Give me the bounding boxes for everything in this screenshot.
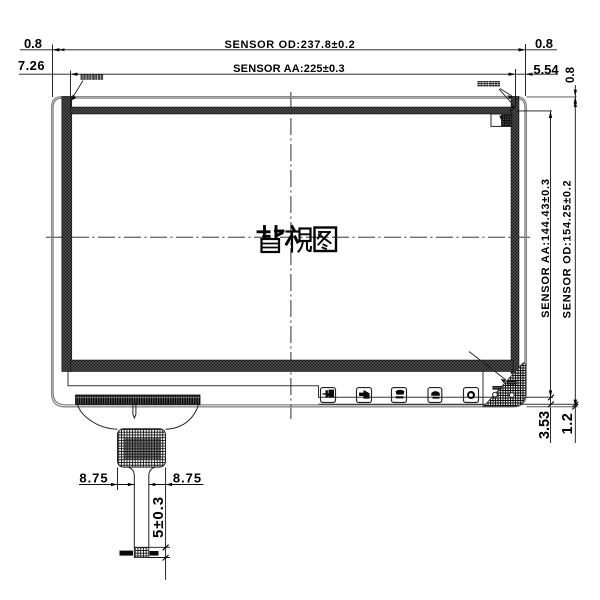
svg-text:1.2: 1.2 bbox=[560, 413, 576, 435]
svg-text:SENSOR AA:225±0.3: SENSOR AA:225±0.3 bbox=[233, 63, 345, 75]
svg-text:3.53: 3.53 bbox=[537, 411, 553, 439]
svg-text:7.26: 7.26 bbox=[18, 58, 45, 73]
svg-text:SENSOR OD:154.25±0.2: SENSOR OD:154.25±0.2 bbox=[562, 180, 574, 319]
svg-text:0.8: 0.8 bbox=[535, 36, 553, 51]
svg-text:8.75: 8.75 bbox=[173, 471, 202, 486]
svg-text:SENSOR AA:144.43±0.3: SENSOR AA:144.43±0.3 bbox=[540, 178, 552, 318]
svg-text:8.75: 8.75 bbox=[79, 471, 108, 486]
svg-text:0.8: 0.8 bbox=[24, 36, 42, 51]
svg-text:SENSOR OD:237.8±0.2: SENSOR OD:237.8±0.2 bbox=[225, 39, 356, 51]
svg-text:5.54: 5.54 bbox=[533, 62, 559, 77]
svg-text:5±0.3: 5±0.3 bbox=[150, 496, 167, 538]
svg-text:0.8: 0.8 bbox=[565, 66, 577, 83]
